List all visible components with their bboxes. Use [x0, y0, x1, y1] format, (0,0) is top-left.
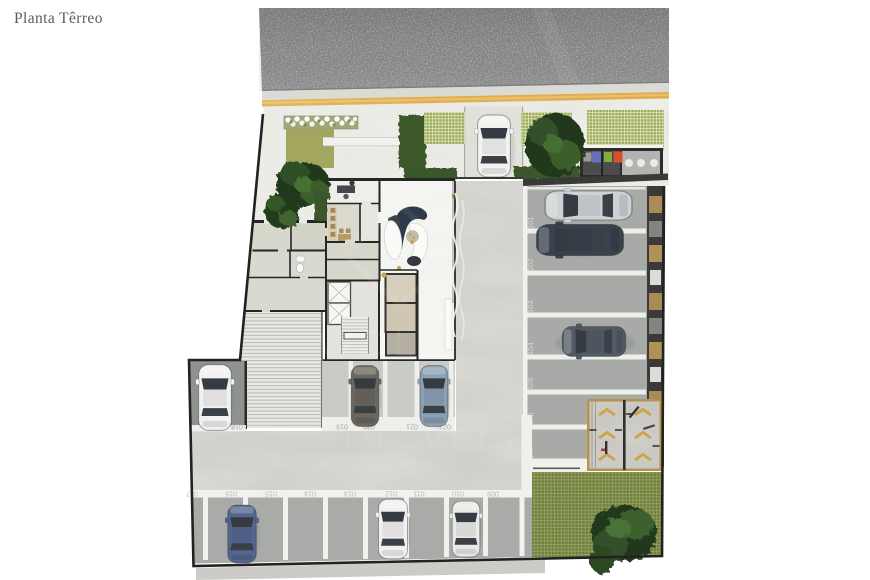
svg-text:014: 014 [304, 490, 316, 497]
svg-text:016: 016 [225, 490, 237, 497]
svg-text:105: 105 [526, 377, 535, 390]
svg-text:015: 015 [265, 490, 277, 497]
svg-text:IMÓVEIS: IMÓVEIS [345, 424, 523, 454]
svg-text:013: 013 [344, 490, 356, 497]
svg-text:011: 011 [413, 490, 424, 497]
svg-text:018: 018 [231, 423, 243, 430]
svg-text:010: 010 [452, 490, 464, 497]
svg-text:103: 103 [526, 300, 535, 313]
svg-text:012: 012 [385, 490, 397, 497]
svg-text:101: 101 [526, 216, 535, 229]
svg-text:102: 102 [526, 258, 535, 271]
svg-text:Planta Têrreo: Planta Têrreo [14, 10, 103, 27]
svg-text:WOLF: WOLF [318, 323, 450, 364]
svg-text:009: 009 [487, 490, 499, 497]
svg-text:104: 104 [526, 342, 535, 355]
